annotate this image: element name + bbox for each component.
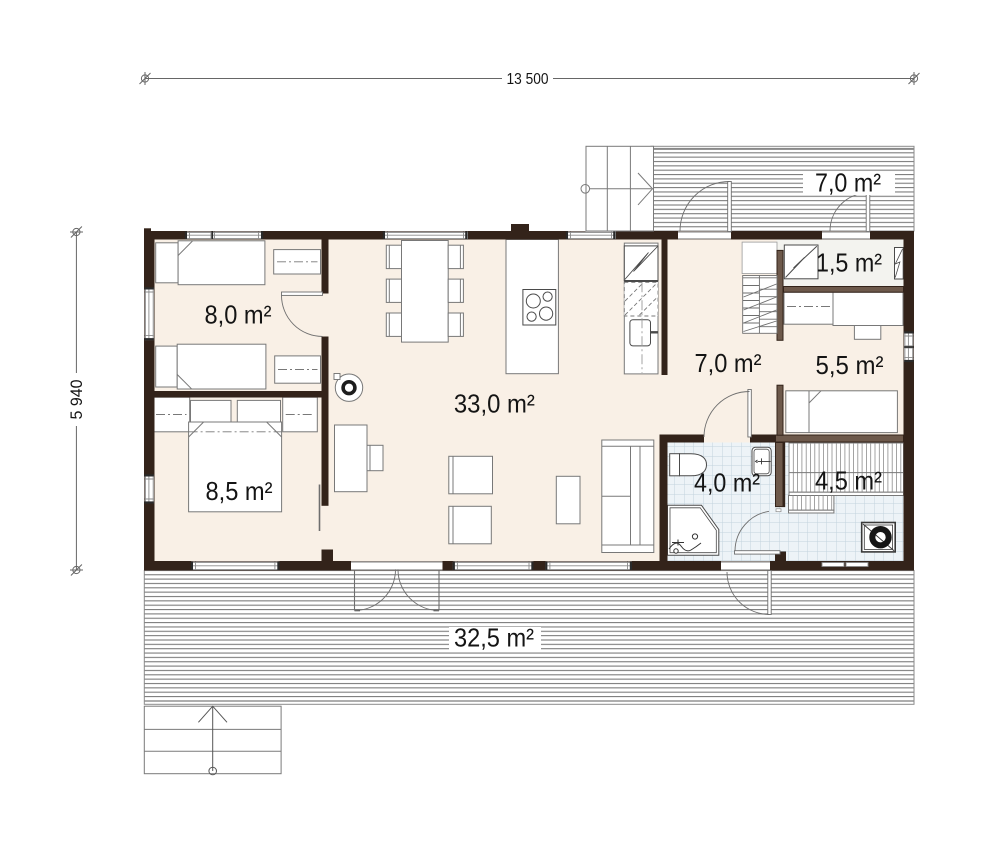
svg-text:5 940: 5 940	[67, 380, 86, 420]
svg-text:1,5 m²: 1,5 m²	[816, 248, 882, 278]
svg-text:7,0 m²: 7,0 m²	[695, 348, 762, 378]
svg-text:32,5 m²: 32,5 m²	[454, 623, 534, 653]
svg-text:13 500: 13 500	[507, 71, 549, 88]
svg-text:4,5 m²: 4,5 m²	[815, 466, 882, 496]
svg-text:8,0 m²: 8,0 m²	[205, 300, 272, 330]
svg-text:7,0 m²: 7,0 m²	[815, 168, 881, 198]
svg-text:8,5 m²: 8,5 m²	[206, 476, 273, 506]
svg-text:4,0 m²: 4,0 m²	[694, 468, 760, 498]
svg-text:33,0 m²: 33,0 m²	[454, 389, 535, 419]
svg-text:5,5 m²: 5,5 m²	[816, 350, 884, 380]
